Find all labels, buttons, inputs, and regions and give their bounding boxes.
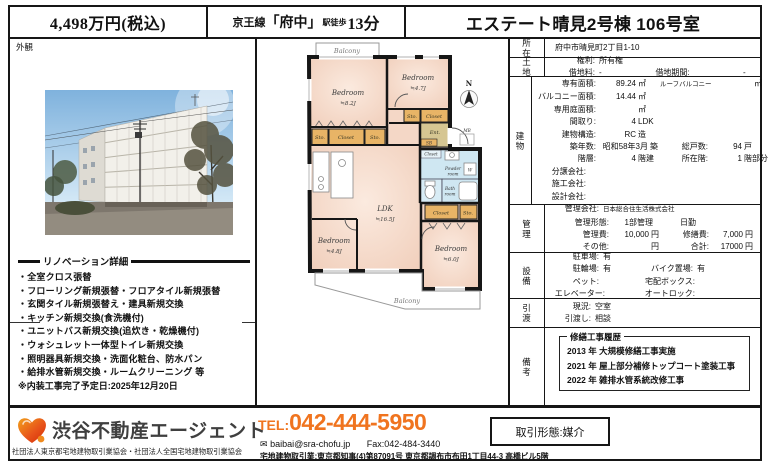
- section-label: 設備: [522, 266, 532, 286]
- field-label: ペット:: [547, 276, 599, 288]
- field-unit: 円: [649, 229, 669, 241]
- phone-block: TEL:042-444-5950: [258, 409, 426, 436]
- north-label: N: [466, 79, 473, 88]
- entrance-label: Ent.: [429, 130, 441, 136]
- station-walk-label: 駅徒歩: [322, 17, 346, 28]
- flyer-page: 4,498万円(税込) 京王線「府中」駅徒歩13分 エステート晴見2号棟 106…: [0, 0, 768, 465]
- field-label: バイク置場:: [611, 263, 693, 275]
- shoebox-label: SB: [426, 141, 432, 146]
- walk-minutes: 13分: [347, 10, 379, 34]
- field-label: 権利:: [547, 55, 595, 67]
- fax-number: Fax:042-484-3440: [367, 439, 441, 449]
- tel-number: 042-444-5950: [289, 409, 426, 435]
- repair-history-item: 2022 年 雑排水管系統改修工事: [567, 373, 745, 388]
- field-value: RC: [596, 129, 636, 141]
- field-label: 管理費:: [547, 229, 609, 241]
- email-address: baibai@sra-chofu.jp: [270, 439, 350, 449]
- field-unit: LDK: [636, 116, 656, 128]
- field-value: 日本総合住生活株式会社: [599, 204, 675, 216]
- field-label: 施工会社:: [534, 178, 586, 190]
- storage-label: Sto.: [463, 211, 473, 217]
- bath-room-label2: room: [444, 192, 455, 197]
- renovation-list: ・全室クロス張替 ・フローリング新規張替・フロアタイル新規張替 ・玄関タイル新規…: [18, 271, 250, 380]
- field-label: 間取り:: [534, 116, 596, 128]
- section-notes: 備考 修繕工事履歴 2013 年 大規模修繕工事実施 2021 年 屋上部分補修…: [510, 328, 760, 405]
- photo-caption: 外観: [16, 41, 33, 53]
- washer-label: W: [468, 168, 473, 173]
- storage-label: Sto.: [315, 135, 325, 141]
- field-value: 昭和58年3月: [596, 141, 648, 153]
- station-name: 「府中」: [265, 12, 321, 32]
- title-rule-left: [18, 260, 40, 263]
- bedroom4-label: Bedroom: [434, 245, 468, 253]
- floorplan: Balcony: [257, 39, 508, 405]
- field-label: 現況:: [547, 301, 591, 313]
- renovation-item: ・給排水管新規交換・ルームクリーニング 等: [18, 366, 250, 380]
- address: 府中市晴見町2丁目1-10: [547, 42, 639, 54]
- field-unit: ㎡: [636, 104, 656, 116]
- field-value: 空室: [591, 301, 611, 313]
- contact-row: ✉ baibai@sra-chofu.jp Fax:042-484-3440: [260, 439, 440, 450]
- body: 外観: [10, 39, 760, 405]
- storage-label: Sto.: [407, 114, 417, 120]
- bath-room-label: Bath: [444, 186, 455, 191]
- mb-label: MB: [462, 128, 470, 133]
- section-label: 土地: [522, 57, 532, 77]
- email-icon: ✉: [260, 439, 268, 449]
- closet-label: Closet: [424, 152, 438, 157]
- north-compass-icon: N: [461, 79, 478, 108]
- title-rule-right: [131, 260, 250, 263]
- renovation-item: ・玄関タイル新規張替え・建具新規交換: [18, 298, 250, 312]
- field-value: 所有権: [595, 55, 623, 67]
- field-label: 宅配ボックス:: [599, 276, 695, 288]
- repair-history-item: 2021 年 屋上部分補修トップコート塗装工事: [567, 359, 745, 374]
- left-column: 外観: [10, 39, 255, 405]
- field-value: 14.44: [596, 91, 636, 103]
- closet-label: Closet: [426, 114, 443, 120]
- field-value: 94: [708, 141, 742, 153]
- field-value: 有: [599, 263, 611, 275]
- field-label: 引渡し:: [547, 313, 591, 325]
- powder-room-label2: room: [447, 172, 458, 177]
- field-label: 管理形態:: [547, 217, 609, 229]
- field-unit: ㎡: [636, 78, 656, 90]
- header: 4,498万円(税込) 京王線「府中」駅徒歩13分 エステート晴見2号棟 106…: [10, 7, 760, 39]
- field-label: 駐輪場:: [547, 263, 599, 275]
- field-unit: 造: [636, 129, 656, 141]
- ldk-size: ≒16.5J: [375, 217, 395, 223]
- flyer-frame: 4,498万円(税込) 京王線「府中」駅徒歩13分 エステート晴見2号棟 106…: [8, 5, 762, 461]
- field-label: 分譲会社:: [534, 166, 586, 178]
- section-handover: 引渡 現況:空室 引渡し:相談: [510, 299, 760, 328]
- field-value: 相談: [591, 313, 611, 325]
- field-value: 7,000: [709, 229, 743, 241]
- rail-line: 京王線: [232, 14, 265, 30]
- price-text: 4,498万円(税込): [50, 10, 166, 34]
- exterior-photo: [45, 90, 233, 235]
- renovation-item: ・照明器具新規交換・洗面化粧台、防水パン: [18, 353, 250, 367]
- field-label: 専有面積:: [534, 78, 596, 90]
- section-label: 所在: [522, 38, 532, 58]
- field-unit: 築: [648, 141, 668, 153]
- section-label: 引渡: [522, 303, 532, 323]
- renovation-item: ・フローリング新規張替・フロアタイル新規張替: [18, 285, 250, 299]
- renovation-section: リノベーション詳細 ・全室クロス張替 ・フローリング新規張替・フロアタイル新規張…: [18, 254, 250, 393]
- field-label: 管理会社:: [547, 203, 599, 215]
- ldk-label: LDK: [376, 205, 393, 213]
- bedroom2-size: ≒4.7J: [410, 86, 426, 92]
- bedroom4-size: ≒6.0J: [443, 257, 459, 263]
- section-building: 建物 専有面積:89.24㎡ルーフバルコニー㎡ バルコニー面積:14.44㎡ 専…: [510, 77, 760, 205]
- renovation-title-row: リノベーション詳細: [18, 254, 250, 268]
- field-value: 1: [708, 153, 742, 165]
- building-title: エステート晴見2号棟 106号室: [466, 10, 700, 35]
- field-label: 設計会社:: [534, 191, 586, 203]
- price-cell: 4,498万円(税込): [10, 7, 208, 37]
- field-value: 89.24: [596, 78, 636, 90]
- field-label: バルコニー面積:: [534, 91, 596, 103]
- bedroom1-label: Bedroom: [331, 89, 365, 97]
- renovation-title: リノベーション詳細: [43, 254, 128, 268]
- renovation-item: ・全室クロス張替: [18, 271, 250, 285]
- field-unit: ㎡: [636, 91, 656, 103]
- field-label: 階層:: [534, 153, 596, 165]
- station-cell: 京王線「府中」駅徒歩13分: [208, 7, 406, 37]
- field-value: 有: [599, 251, 611, 263]
- field-label: 専用庭面積:: [534, 104, 596, 116]
- floorplan-column: Balcony: [257, 39, 508, 405]
- license-line: 宅地建物取引業:東京都知事(4)第87091号 東京都調布市布田1丁目44-3 …: [260, 451, 549, 462]
- repair-history-title: 修繕工事履歴: [567, 331, 624, 343]
- bedroom3-label: Bedroom: [317, 237, 351, 245]
- powder-room-label: Powder: [444, 166, 462, 171]
- section-label: 建物: [515, 131, 525, 151]
- field-value: 1部管理: [609, 217, 653, 229]
- renovation-item: ・キッチン新規交換(食洗機付): [18, 312, 250, 326]
- field-label: 修繕費:: [669, 229, 709, 241]
- section-land: 土地 権利:所有権 借地料:-借地期間:-: [510, 58, 760, 77]
- section-label: 管理: [522, 219, 532, 239]
- field-value: 10,000: [609, 229, 649, 241]
- bedroom2-label: Bedroom: [401, 74, 435, 82]
- brand-heart-icon: [14, 414, 50, 446]
- field-unit: 階建: [636, 153, 656, 165]
- field-value: 4: [596, 153, 636, 165]
- field-label: 総戸数:: [668, 141, 708, 153]
- closet-label: Closet: [433, 211, 450, 217]
- field-value: 有: [693, 263, 705, 275]
- repair-history-item: 2013 年 大規模修繕工事実施: [567, 344, 745, 359]
- renovation-note: ※内装工事完了予定日:2025年12月20日: [18, 380, 250, 394]
- field-unit: 戸: [742, 141, 756, 153]
- field-label: 建物構造:: [534, 129, 596, 141]
- field-value: 日勤: [653, 217, 723, 229]
- building-title-cell: エステート晴見2号棟 106号室: [406, 7, 760, 37]
- tel-label: TEL:: [258, 417, 289, 433]
- storage-label: Sto.: [370, 135, 380, 141]
- brand-name: 渋谷不動産エージェント: [52, 416, 266, 443]
- field-label: ルーフバルコニー: [656, 79, 718, 91]
- balcony-bottom-label: Balcony: [393, 297, 420, 305]
- closet-label: Closet: [338, 135, 355, 141]
- section-label: 備考: [522, 357, 532, 377]
- field-unit: 円: [743, 229, 757, 241]
- section-management: 管理 管理会社:日本総合住生活株式会社 管理形態:1部管理日勤 管理費:10,0…: [510, 205, 760, 253]
- renovation-item: ・ウォシュレット一体型トイレ新規交換: [18, 339, 250, 353]
- repair-history-box: 修繕工事履歴 2013 年 大規模修繕工事実施 2021 年 屋上部分補修トップ…: [559, 336, 750, 391]
- footer: 渋谷不動産エージェント 社団法人東京都宅地建物取引業協会・社団法人全国宅地建物取…: [10, 405, 760, 459]
- field-label: 所在階:: [656, 153, 708, 165]
- field-label: 駐車場:: [547, 251, 599, 263]
- deal-type-box: 取引形態:媒介: [490, 417, 610, 446]
- renovation-item: ・ユニットバス新規交換(追炊き・乾燥機付): [18, 325, 250, 339]
- field-unit: 階部分: [742, 153, 768, 165]
- field-unit: ㎡: [752, 78, 766, 90]
- deal-type: 取引形態:媒介: [515, 424, 584, 440]
- balcony-top-label: Balcony: [333, 47, 360, 55]
- field-value: 4: [596, 116, 636, 128]
- spec-table: 所在 府中市晴見町2丁目1-10 土地 権利:所有権 借地料:-借地期間:- 建…: [510, 39, 760, 405]
- field-label: 築年数:: [534, 141, 596, 153]
- association-text: 社団法人東京都宅地建物取引業協会・社団法人全国宅地建物取引業協会: [12, 447, 242, 457]
- section-equipment: 設備 駐車場:有 駐輪場:有バイク置場:有 ペット:宅配ボックス: エレベーター…: [510, 253, 760, 299]
- bedroom3-size: ≒4.8J: [326, 249, 342, 255]
- bedroom1-size: ≒8.2J: [340, 101, 356, 107]
